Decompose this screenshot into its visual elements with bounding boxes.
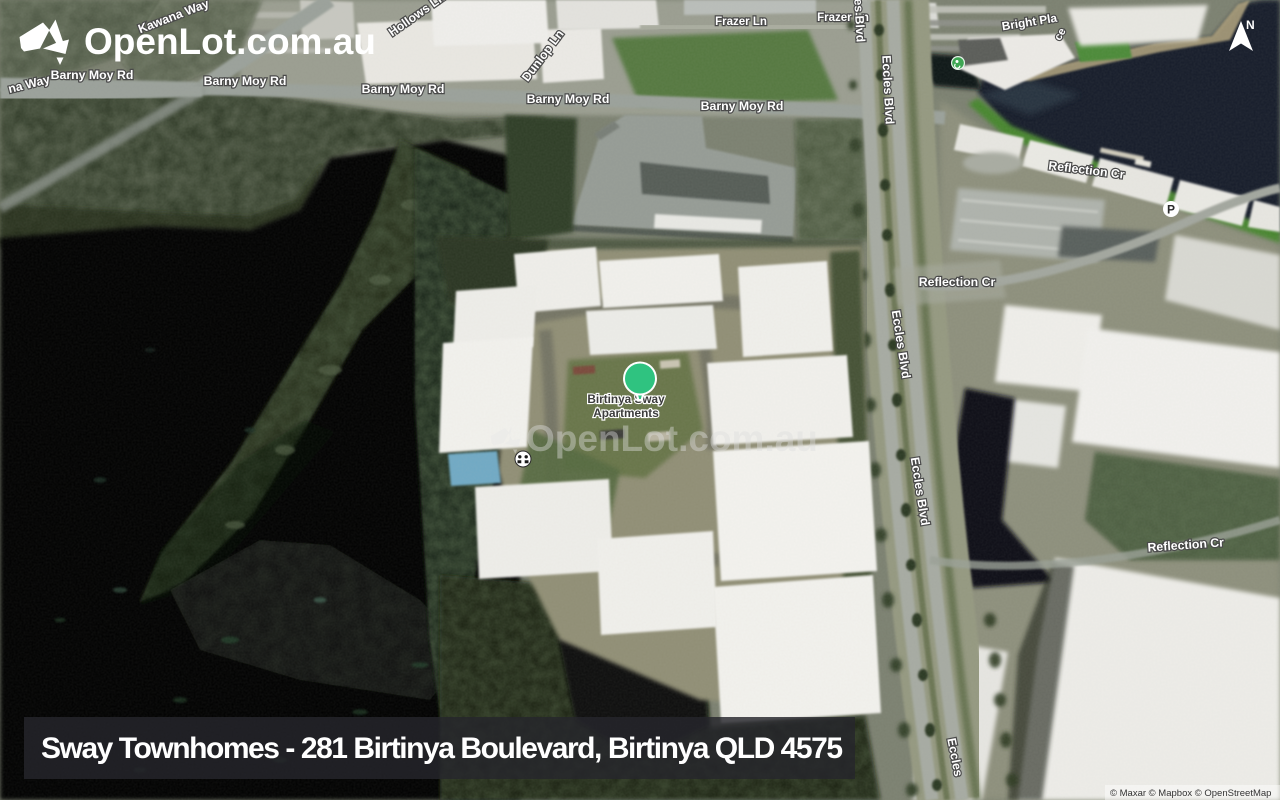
svg-text:Reflection Cr: Reflection Cr bbox=[919, 275, 996, 289]
svg-text:na Way: na Way bbox=[7, 72, 52, 96]
svg-text:Barny Moy Rd: Barny Moy Rd bbox=[51, 68, 134, 82]
svg-text:Eccles Blvd: Eccles Blvd bbox=[879, 55, 897, 125]
svg-text:OpenLot.com.au: OpenLot.com.au bbox=[84, 21, 376, 62]
svg-text:Eccles: Eccles bbox=[944, 737, 965, 778]
svg-text:ce: ce bbox=[1052, 26, 1069, 43]
svg-text:OpenLot.com.au: OpenLot.com.au bbox=[526, 418, 818, 459]
svg-text:P: P bbox=[1167, 203, 1175, 217]
svg-text:Reflection Cr: Reflection Cr bbox=[1147, 535, 1225, 554]
svg-text:Bright Pla: Bright Pla bbox=[1001, 11, 1059, 34]
svg-text:Eccles Blvd: Eccles Blvd bbox=[908, 456, 933, 526]
svg-text:Birtinya Sway: Birtinya Sway bbox=[587, 392, 665, 406]
svg-text:Eccles Blvd: Eccles Blvd bbox=[889, 309, 914, 379]
svg-text:Apartments: Apartments bbox=[593, 406, 659, 420]
svg-text:N: N bbox=[1246, 18, 1255, 32]
svg-text:Frazer Ln: Frazer Ln bbox=[715, 16, 767, 28]
svg-text:Barny Moy Rd: Barny Moy Rd bbox=[362, 82, 445, 96]
svg-text:Reflection Cr: Reflection Cr bbox=[1048, 158, 1126, 181]
svg-text:Barny Moy Rd: Barny Moy Rd bbox=[204, 74, 287, 88]
svg-text:Barny Moy Rd: Barny Moy Rd bbox=[527, 92, 610, 106]
svg-text:Hollows Ln: Hollows Ln bbox=[386, 0, 448, 39]
svg-text:Dunlop Ln: Dunlop Ln bbox=[519, 27, 567, 84]
svg-text:ccles Blvd: ccles Blvd bbox=[850, 0, 867, 43]
svg-text:Barny Moy Rd: Barny Moy Rd bbox=[701, 99, 784, 113]
svg-text:© Maxar © Mapbox © OpenStreetM: © Maxar © Mapbox © OpenStreetMap bbox=[1110, 788, 1271, 799]
